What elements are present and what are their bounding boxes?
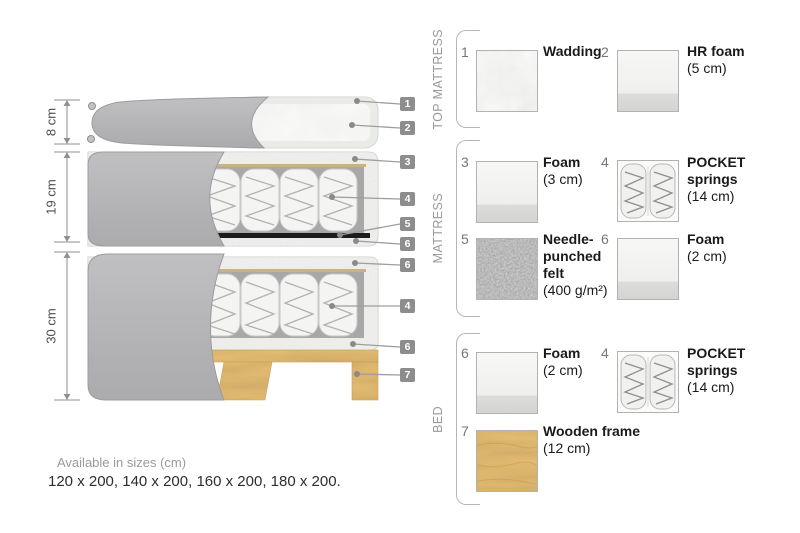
legend-item-label: Wooden frame [543,423,673,440]
dimension-8cm: 8 cm [44,100,81,144]
legend-item-number: 2 [601,44,609,60]
legend-item-number: 6 [461,345,469,361]
cross-section-diagram: 8 cm 19 cm 30 cm [40,85,420,420]
foam-swatch [476,352,538,414]
legend-item-number: 6 [601,231,609,247]
callout-tag-6: 6 [400,237,415,251]
dimension-19cm: 19 cm [44,152,81,242]
cover-button [88,136,95,143]
legend-item-label: POCKET springs [687,345,777,379]
mattress-cross-section [88,152,378,246]
section-title-text: MATTRESS [431,193,445,263]
wadding-swatch [476,50,538,112]
available-sizes-list: 120 x 200, 140 x 200, 160 x 200, 180 x 2… [48,473,341,490]
mattress-construction-diagram-page: 8 cm 19 cm 30 cm [0,0,800,533]
legend-item-text: Foam (2 cm) [687,231,777,265]
legend-item-sub: (400 g/m²) [543,282,607,299]
dimension-30cm-label: 30 cm [44,308,59,343]
callout-tag-1: 1 [400,97,415,111]
callout-tag-3: 3 [400,155,415,169]
legend-item-number: 3 [461,154,469,170]
available-sizes-caption: Available in sizes (cm) [57,455,186,470]
callout-tag-5: 5 [400,217,415,231]
legend-item-sub: (12 cm) [543,440,673,457]
legend-item-text: Needle-punched felt (400 g/m²) [543,231,607,299]
legend-item-number: 4 [601,154,609,170]
legend-item-number: 5 [461,231,469,247]
legend-item-label: HR foam [687,43,777,60]
top-mattress-cross-section [88,97,379,148]
section-title-mattress: MATTRESS [428,140,448,317]
dimension-30cm: 30 cm [44,252,81,400]
callout-tag-7: 7 [400,368,415,382]
legend-item-text: POCKET springs (14 cm) [687,154,777,205]
legend-item-sub: (14 cm) [687,188,777,205]
wood-swatch [476,430,538,492]
bed-cross-section [88,254,378,400]
section-title-bed: BED [428,333,448,505]
foam-swatch [476,161,538,223]
section-title-text: TOP MATTRESS [431,29,445,130]
top-mattress-cover [92,97,268,148]
callout-tag-2: 2 [400,121,415,135]
section-title-text: BED [431,406,445,433]
foam-swatch [617,238,679,300]
pocket-springs-swatch [617,160,679,222]
legend-item-number: 4 [601,345,609,361]
legend-item-number: 7 [461,423,469,439]
dimension-19cm-label: 19 cm [44,179,59,214]
cover-button [89,103,96,110]
dimension-8cm-label: 8 cm [44,108,59,136]
felt-swatch [476,238,538,300]
legend-item-text: Wooden frame (12 cm) [543,423,673,457]
callout-tag-4: 4 [400,192,415,206]
foam-swatch [617,50,679,112]
callout-tag-6-bed-bottom: 6 [400,340,415,354]
legend-item-text: HR foam (5 cm) [687,43,777,77]
mattress-cover [88,152,224,246]
legend-item-sub: (2 cm) [687,248,777,265]
callout-tag-4-bed: 4 [400,299,415,313]
legend-item-number: 1 [461,44,469,60]
section-title-top-mattress: TOP MATTRESS [428,30,448,128]
legend-item-sub: (5 cm) [687,60,777,77]
legend-item-label: Foam [687,231,777,248]
callout-tag-6-bed-top: 6 [400,258,415,272]
legend-item-text: POCKET springs (14 cm) [687,345,777,396]
legend-item-label: Needle-punched felt [543,231,607,282]
legend-item-label: POCKET springs [687,154,777,188]
pocket-springs-swatch [617,351,679,413]
bed-cover [88,254,224,400]
legend-item-sub: (14 cm) [687,379,777,396]
